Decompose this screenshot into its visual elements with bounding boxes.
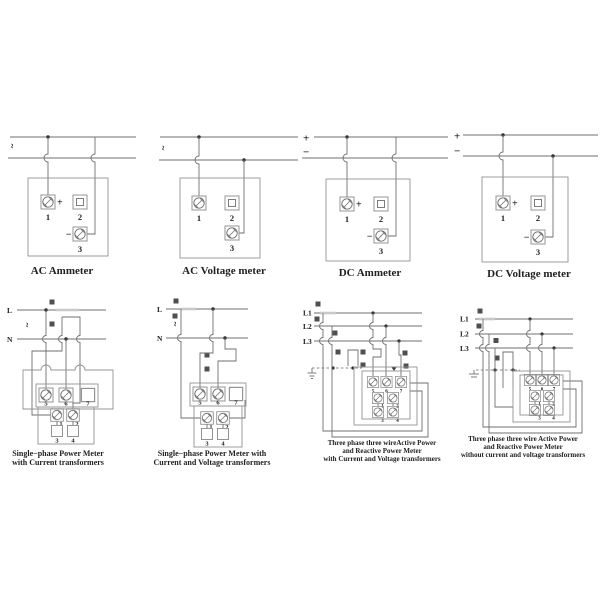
terminal-3 bbox=[225, 226, 239, 240]
meter-box bbox=[28, 178, 108, 256]
diagram-caption-line1: Single−phase Power Meter bbox=[12, 449, 104, 458]
terminal-label-3: 3 bbox=[379, 246, 383, 256]
terminal-3 bbox=[374, 229, 388, 243]
terminal-label-4: 4 bbox=[221, 441, 225, 448]
diagram-caption-line1: Three phase three wireActive Power bbox=[328, 439, 436, 447]
diagram-caption: AC Voltage meter bbox=[182, 265, 266, 277]
terminal-label-3: 3 bbox=[205, 441, 209, 448]
terminal-label-3: 3 bbox=[230, 243, 234, 253]
current-transformer-mark bbox=[173, 314, 178, 319]
current-transformer-mark bbox=[333, 331, 338, 336]
single-phase-ct-meter-diagram: L N ~ 5 6 7 1 2 bbox=[0, 295, 150, 480]
terminal-1 bbox=[201, 412, 214, 425]
ground-symbol bbox=[469, 370, 479, 377]
supply-lines bbox=[302, 135, 448, 158]
diagram-caption-line2: with Current transformers bbox=[12, 458, 104, 467]
diagram-caption-line1: Three phase three wire Active Power bbox=[468, 435, 578, 443]
ac-ammeter-diagram: ~ + − 1 2 3 AC Ammeter bbox=[0, 125, 150, 285]
terminal-2 bbox=[531, 196, 545, 210]
terminal-label-2: 2 bbox=[379, 214, 383, 224]
lower-terminal-box bbox=[38, 407, 94, 444]
meter-wires bbox=[499, 135, 553, 237]
three-phase-ct-vt-meter-diagram: L1 L2 L3 bbox=[300, 295, 470, 480]
terminal-label-1: 1 bbox=[501, 213, 505, 223]
terminal-2 bbox=[67, 409, 80, 422]
terminal-minus-sign: − bbox=[367, 232, 373, 243]
terminal-1 bbox=[41, 195, 55, 209]
terminal-2 bbox=[374, 197, 388, 211]
terminal-1 bbox=[340, 197, 354, 211]
voltage-transformer-mark bbox=[361, 350, 366, 355]
line-label-L1: L1 bbox=[303, 309, 312, 318]
terminal-label-4: 4 bbox=[396, 419, 399, 424]
diagram-caption: AC Ammeter bbox=[31, 265, 94, 277]
meter-wires bbox=[44, 137, 95, 234]
diagram-caption-line1: Single−phase Power Meter with bbox=[158, 449, 267, 458]
supply-lines bbox=[463, 133, 598, 157]
voltage-transformer-mark bbox=[205, 367, 210, 372]
line-label-L3: L3 bbox=[303, 337, 312, 346]
terminal-1 bbox=[51, 409, 64, 422]
dc-voltmeter-diagram: + − + − 1 2 3 DC Voltage meter bbox=[450, 125, 600, 285]
terminal-5 bbox=[524, 374, 535, 385]
current-transformer-mark bbox=[174, 299, 179, 304]
dc-ammeter-diagram: + − + − 1 2 3 DC Ammeter bbox=[300, 125, 450, 285]
diagram-caption: DC Voltage meter bbox=[487, 268, 571, 280]
meter-box bbox=[326, 179, 410, 261]
terminal-label-1: 1 bbox=[46, 212, 50, 222]
terminal-5 bbox=[367, 376, 378, 387]
terminal-label-3: 3 bbox=[538, 417, 541, 422]
terminal-label-1: 1 bbox=[345, 214, 349, 224]
terminal-2 bbox=[387, 392, 398, 403]
meter-box bbox=[482, 177, 568, 262]
terminal-label-3: 3 bbox=[55, 438, 59, 445]
meter-wires bbox=[343, 137, 396, 236]
terminal-1 bbox=[192, 196, 206, 210]
terminal-2 bbox=[217, 412, 230, 425]
line-label-L3: L3 bbox=[460, 344, 469, 353]
current-transformer-mark bbox=[477, 324, 482, 329]
line-minus-sign: − bbox=[303, 147, 309, 159]
terminal-2 bbox=[225, 196, 239, 210]
ac-source-symbol: ~ bbox=[158, 146, 168, 151]
current-transformer-mark bbox=[494, 338, 499, 343]
line-plus-sign: + bbox=[454, 131, 460, 143]
terminal-label-2: 2 bbox=[230, 213, 234, 223]
terminal-3 bbox=[73, 227, 87, 241]
line-label-L2: L2 bbox=[460, 330, 469, 339]
line-plus-sign: + bbox=[303, 133, 309, 145]
terminal-label-2: 2 bbox=[536, 213, 540, 223]
terminal-1 bbox=[496, 196, 510, 210]
diagram-caption-line3: without current and voltage transformers bbox=[461, 451, 586, 459]
diagram-caption-line2: Current and Voltage transformers bbox=[154, 458, 271, 467]
meter-box bbox=[180, 178, 260, 258]
current-transformer-mark bbox=[315, 317, 320, 322]
meter-outer-box bbox=[354, 367, 417, 425]
ac-source-symbol: ~ bbox=[22, 323, 32, 328]
diagram-caption-line2: and Reactive Power Meter bbox=[483, 443, 562, 451]
terminal-label-3: 3 bbox=[381, 419, 384, 424]
supply-lines bbox=[159, 135, 298, 161]
terminal-6 bbox=[536, 374, 547, 385]
terminal-2 bbox=[73, 195, 87, 209]
line-label-L: L bbox=[157, 305, 162, 314]
terminal-label-4: 4 bbox=[71, 438, 75, 445]
terminal-7 bbox=[548, 374, 559, 385]
terminal-plus-sign: + bbox=[512, 199, 518, 210]
line-label-L2: L2 bbox=[303, 322, 312, 331]
terminal-label-1: 1 bbox=[197, 213, 201, 223]
wiring-diagrams-sheet: ~ + − 1 2 3 AC Ammeter ~ 1 2 bbox=[0, 0, 600, 600]
ac-voltmeter-diagram: ~ 1 2 3 AC Voltage meter bbox=[150, 125, 300, 285]
three-phase-direct-meter-diagram: L1 L2 L3 bbox=[450, 295, 600, 480]
current-transformer-mark bbox=[50, 300, 55, 305]
terminal-plus-sign: + bbox=[57, 198, 63, 209]
ac-source-symbol: ~ bbox=[170, 322, 180, 327]
line-label-N: N bbox=[157, 334, 163, 343]
line-label-N: N bbox=[7, 335, 13, 344]
terminal-plus-sign: + bbox=[356, 200, 362, 211]
terminal-label-4: 4 bbox=[552, 417, 555, 422]
voltage-transformer-mark bbox=[336, 350, 341, 355]
diagram-caption-line3: with Current and Voltage transformers bbox=[323, 455, 441, 463]
terminal-label-3: 3 bbox=[78, 244, 82, 254]
diagram-caption: DC Ammeter bbox=[339, 267, 402, 279]
current-transformer-mark bbox=[478, 309, 483, 314]
terminal-minus-sign: − bbox=[524, 233, 530, 244]
terminal-label-7: 7 bbox=[400, 390, 403, 395]
supply-lines bbox=[8, 135, 136, 158]
terminal-minus-sign: − bbox=[66, 230, 72, 241]
voltage-transformer-mark bbox=[403, 351, 408, 356]
line-label-L1: L1 bbox=[460, 315, 469, 324]
terminal-3 bbox=[531, 230, 545, 244]
supply-lines bbox=[475, 317, 573, 349]
current-transformer-mark bbox=[50, 322, 55, 327]
line-label-L: L bbox=[7, 306, 12, 315]
terminal-label-3: 3 bbox=[536, 247, 540, 257]
single-phase-ct-vt-meter-diagram: L N ~ 5 6 7 1 bbox=[150, 295, 300, 480]
terminal-7 bbox=[395, 376, 406, 387]
terminal-label-2: 2 bbox=[78, 212, 82, 222]
ac-source-symbol: ~ bbox=[7, 144, 17, 149]
meter-wires bbox=[195, 137, 244, 233]
current-transformer-mark bbox=[316, 302, 321, 307]
meter-outer-box bbox=[513, 371, 570, 422]
line-minus-sign: − bbox=[454, 146, 460, 158]
voltage-transformer-mark bbox=[404, 364, 409, 369]
ground-symbol bbox=[308, 368, 317, 379]
diagram-caption-line2: and Reactive Power Meter bbox=[342, 447, 421, 455]
terminal-6 bbox=[381, 376, 392, 387]
